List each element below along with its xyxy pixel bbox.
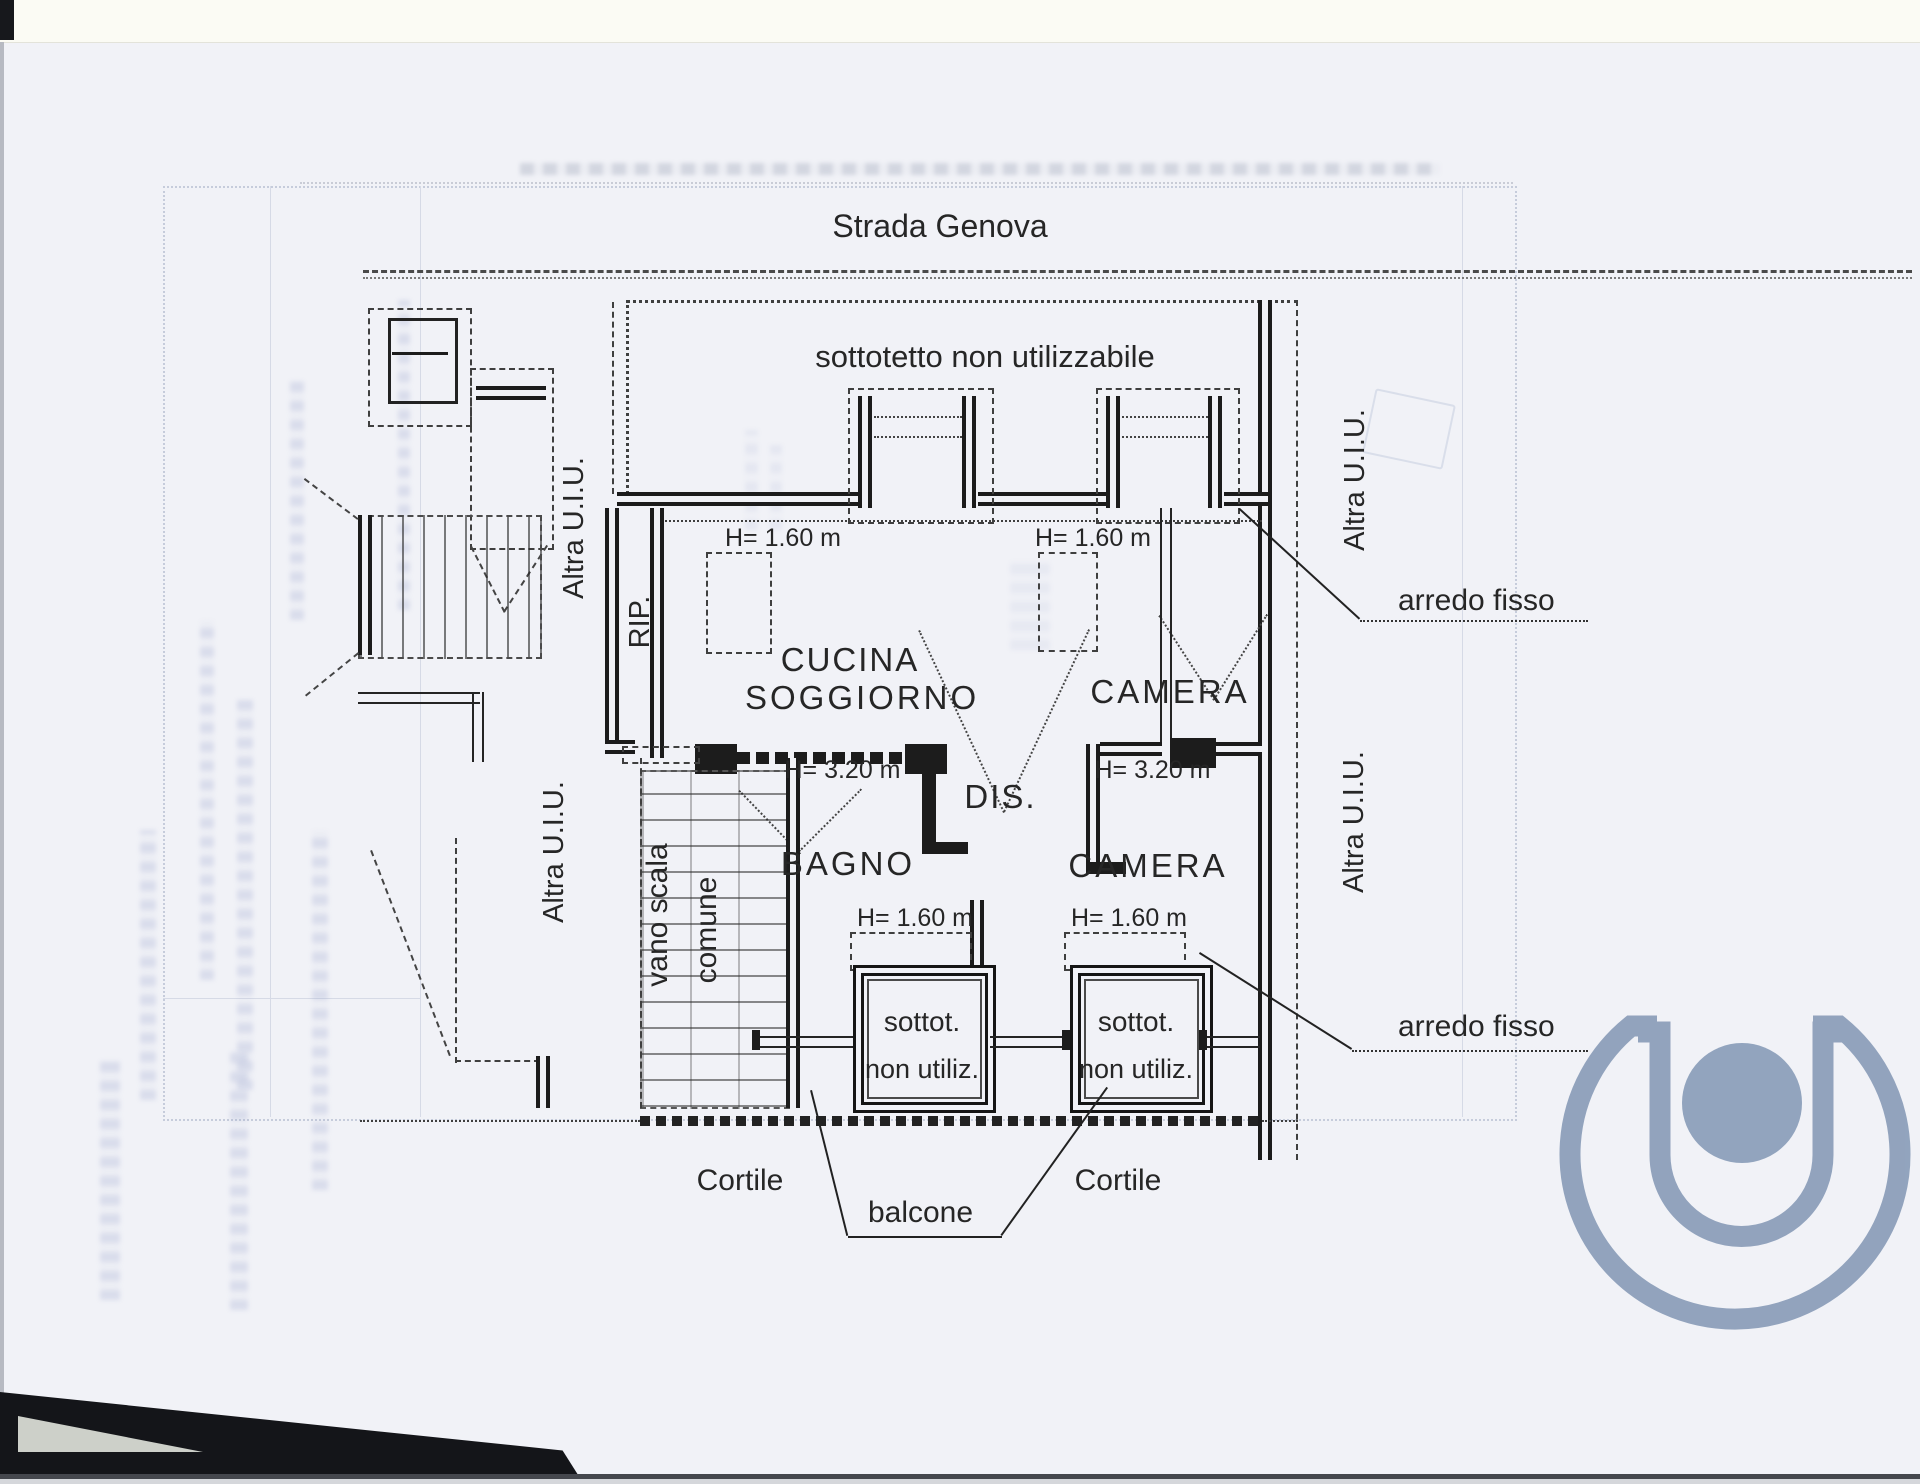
bleed-text-smudge bbox=[200, 620, 214, 980]
attic-boundary-left-2 bbox=[612, 302, 614, 494]
wall-thin bbox=[472, 692, 484, 762]
corner-mark bbox=[0, 0, 14, 40]
dashed-projection bbox=[706, 552, 772, 654]
street-boundary-line bbox=[363, 270, 1912, 273]
balcony-rail bbox=[990, 1036, 1070, 1048]
stairwell-label-2: comune bbox=[692, 860, 722, 1000]
other-unit-dashed bbox=[455, 1060, 540, 1062]
attic-boundary-left bbox=[626, 300, 629, 494]
bedroom-wall-left bbox=[1160, 508, 1172, 748]
height-annotation: H= 3.20 m bbox=[775, 758, 910, 783]
height-annotation: H= 1.60 m bbox=[850, 906, 980, 931]
other-unit-separation-line bbox=[1296, 300, 1298, 1160]
street-label: Strada Genova bbox=[810, 210, 1070, 242]
bleed-text-smudge bbox=[230, 1050, 248, 1310]
attic-abbr-label: non utiliz. bbox=[1070, 1056, 1202, 1083]
external-stairs bbox=[358, 515, 542, 659]
party-wall-right bbox=[1258, 300, 1272, 1160]
bleed-smudge bbox=[770, 445, 782, 530]
faint-dotted-rule bbox=[300, 182, 1513, 184]
bleed-text-smudge bbox=[290, 380, 304, 620]
closet-label: RIP. bbox=[626, 582, 656, 662]
bleed-text-smudge bbox=[140, 830, 156, 1100]
attic-boundary-top bbox=[626, 300, 1298, 303]
other-unit-dashed bbox=[455, 838, 457, 1063]
rail-post bbox=[752, 1030, 760, 1050]
wall bbox=[978, 492, 1108, 506]
height-annotation: H= 3.20 m bbox=[1085, 758, 1220, 783]
form-row-line bbox=[163, 998, 420, 999]
attic-abbr-label: non utiliz. bbox=[856, 1056, 988, 1083]
balcony-rail bbox=[1207, 1036, 1260, 1048]
other-unit-label: Altra U.I.U. bbox=[540, 757, 570, 947]
rail-post bbox=[1199, 1030, 1207, 1050]
dashed-projection bbox=[1038, 552, 1098, 652]
stair-top-dashed bbox=[622, 746, 700, 764]
height-annotation: H= 1.60 m bbox=[718, 526, 848, 551]
fixed-furniture-label: arredo fisso bbox=[1398, 586, 1588, 616]
rail-post bbox=[1062, 1030, 1070, 1050]
dormer-cap bbox=[476, 386, 546, 400]
wall bbox=[1216, 742, 1262, 756]
form-column-line bbox=[270, 186, 271, 1117]
wall-thin bbox=[358, 692, 480, 704]
leader-underline bbox=[1360, 620, 1588, 622]
courtyard-boundary bbox=[360, 1120, 640, 1122]
hall-wall-foot bbox=[922, 842, 968, 854]
wall-stub bbox=[536, 1056, 550, 1108]
bleed-text-smudge bbox=[100, 1060, 120, 1300]
faint-header-text bbox=[520, 163, 1440, 175]
dormer-dashed-outline bbox=[848, 388, 994, 524]
balcony-label: balcone bbox=[863, 1198, 978, 1228]
courtyard-label-left: Cortile bbox=[690, 1166, 790, 1196]
room-label-hall: DIS. bbox=[948, 780, 1053, 813]
wall bbox=[617, 492, 860, 506]
balcony-leader-base bbox=[848, 1236, 1002, 1238]
wall-pillar bbox=[905, 744, 947, 774]
form-column-line bbox=[1462, 186, 1463, 1117]
leader-underline bbox=[1352, 1050, 1588, 1052]
street-boundary-line bbox=[363, 277, 1912, 279]
courtyard-boundary bbox=[1262, 1120, 1298, 1122]
chimney-line bbox=[392, 352, 448, 355]
stairwell-wall-right bbox=[786, 758, 800, 1108]
facade-boundary bbox=[640, 1116, 1262, 1126]
attic-box bbox=[853, 965, 996, 1113]
bleed-text-smudge bbox=[312, 830, 328, 1190]
height-annotation: H= 1.60 m bbox=[1028, 526, 1158, 551]
scanned-floor-plan-page: Strada Genova sottotetto non utilizzabil… bbox=[0, 0, 1920, 1484]
logo-dot bbox=[1682, 1043, 1802, 1163]
attic-note-label: sottotetto non utilizzabile bbox=[775, 341, 1195, 372]
room-label-bedroom-2: CAMERA bbox=[1063, 849, 1233, 882]
dormer-dashed-outline bbox=[1096, 388, 1240, 524]
attic-abbr-label: sottot. bbox=[1080, 1008, 1192, 1036]
wall bbox=[1100, 742, 1162, 756]
stairs-side-wall bbox=[358, 515, 372, 655]
height-annotation: H= 1.60 m bbox=[1064, 906, 1194, 931]
closet-wall-left bbox=[605, 508, 619, 748]
courtyard-label-right: Cortile bbox=[1068, 1166, 1168, 1196]
bleed-text-smudge bbox=[237, 700, 253, 1090]
bleed-smudge bbox=[745, 430, 758, 530]
balcony-rail bbox=[760, 1036, 853, 1048]
other-unit-label: Altra U.I.U. bbox=[1341, 385, 1371, 575]
attic-abbr-label: sottot. bbox=[866, 1008, 978, 1036]
other-unit-label: Altra U.I.U. bbox=[1340, 727, 1370, 917]
other-unit-label: Altra U.I.U. bbox=[560, 433, 590, 623]
chimney bbox=[388, 318, 458, 404]
page-left-edge bbox=[0, 42, 4, 1474]
room-label-bathroom: BAGNO bbox=[768, 847, 928, 880]
room-label-kitchen-2: SOGGIORNO bbox=[745, 681, 960, 714]
attic-box bbox=[1070, 965, 1213, 1113]
watermark-logo-icon bbox=[1555, 1000, 1920, 1380]
scanner-top-strip bbox=[0, 0, 1920, 43]
room-label-bedroom-1: CAMERA bbox=[1085, 675, 1255, 708]
backdrop-strip bbox=[0, 1479, 1920, 1484]
stairwell-label: vano scala bbox=[643, 830, 673, 1000]
room-label-kitchen: CUCINA bbox=[765, 643, 935, 676]
